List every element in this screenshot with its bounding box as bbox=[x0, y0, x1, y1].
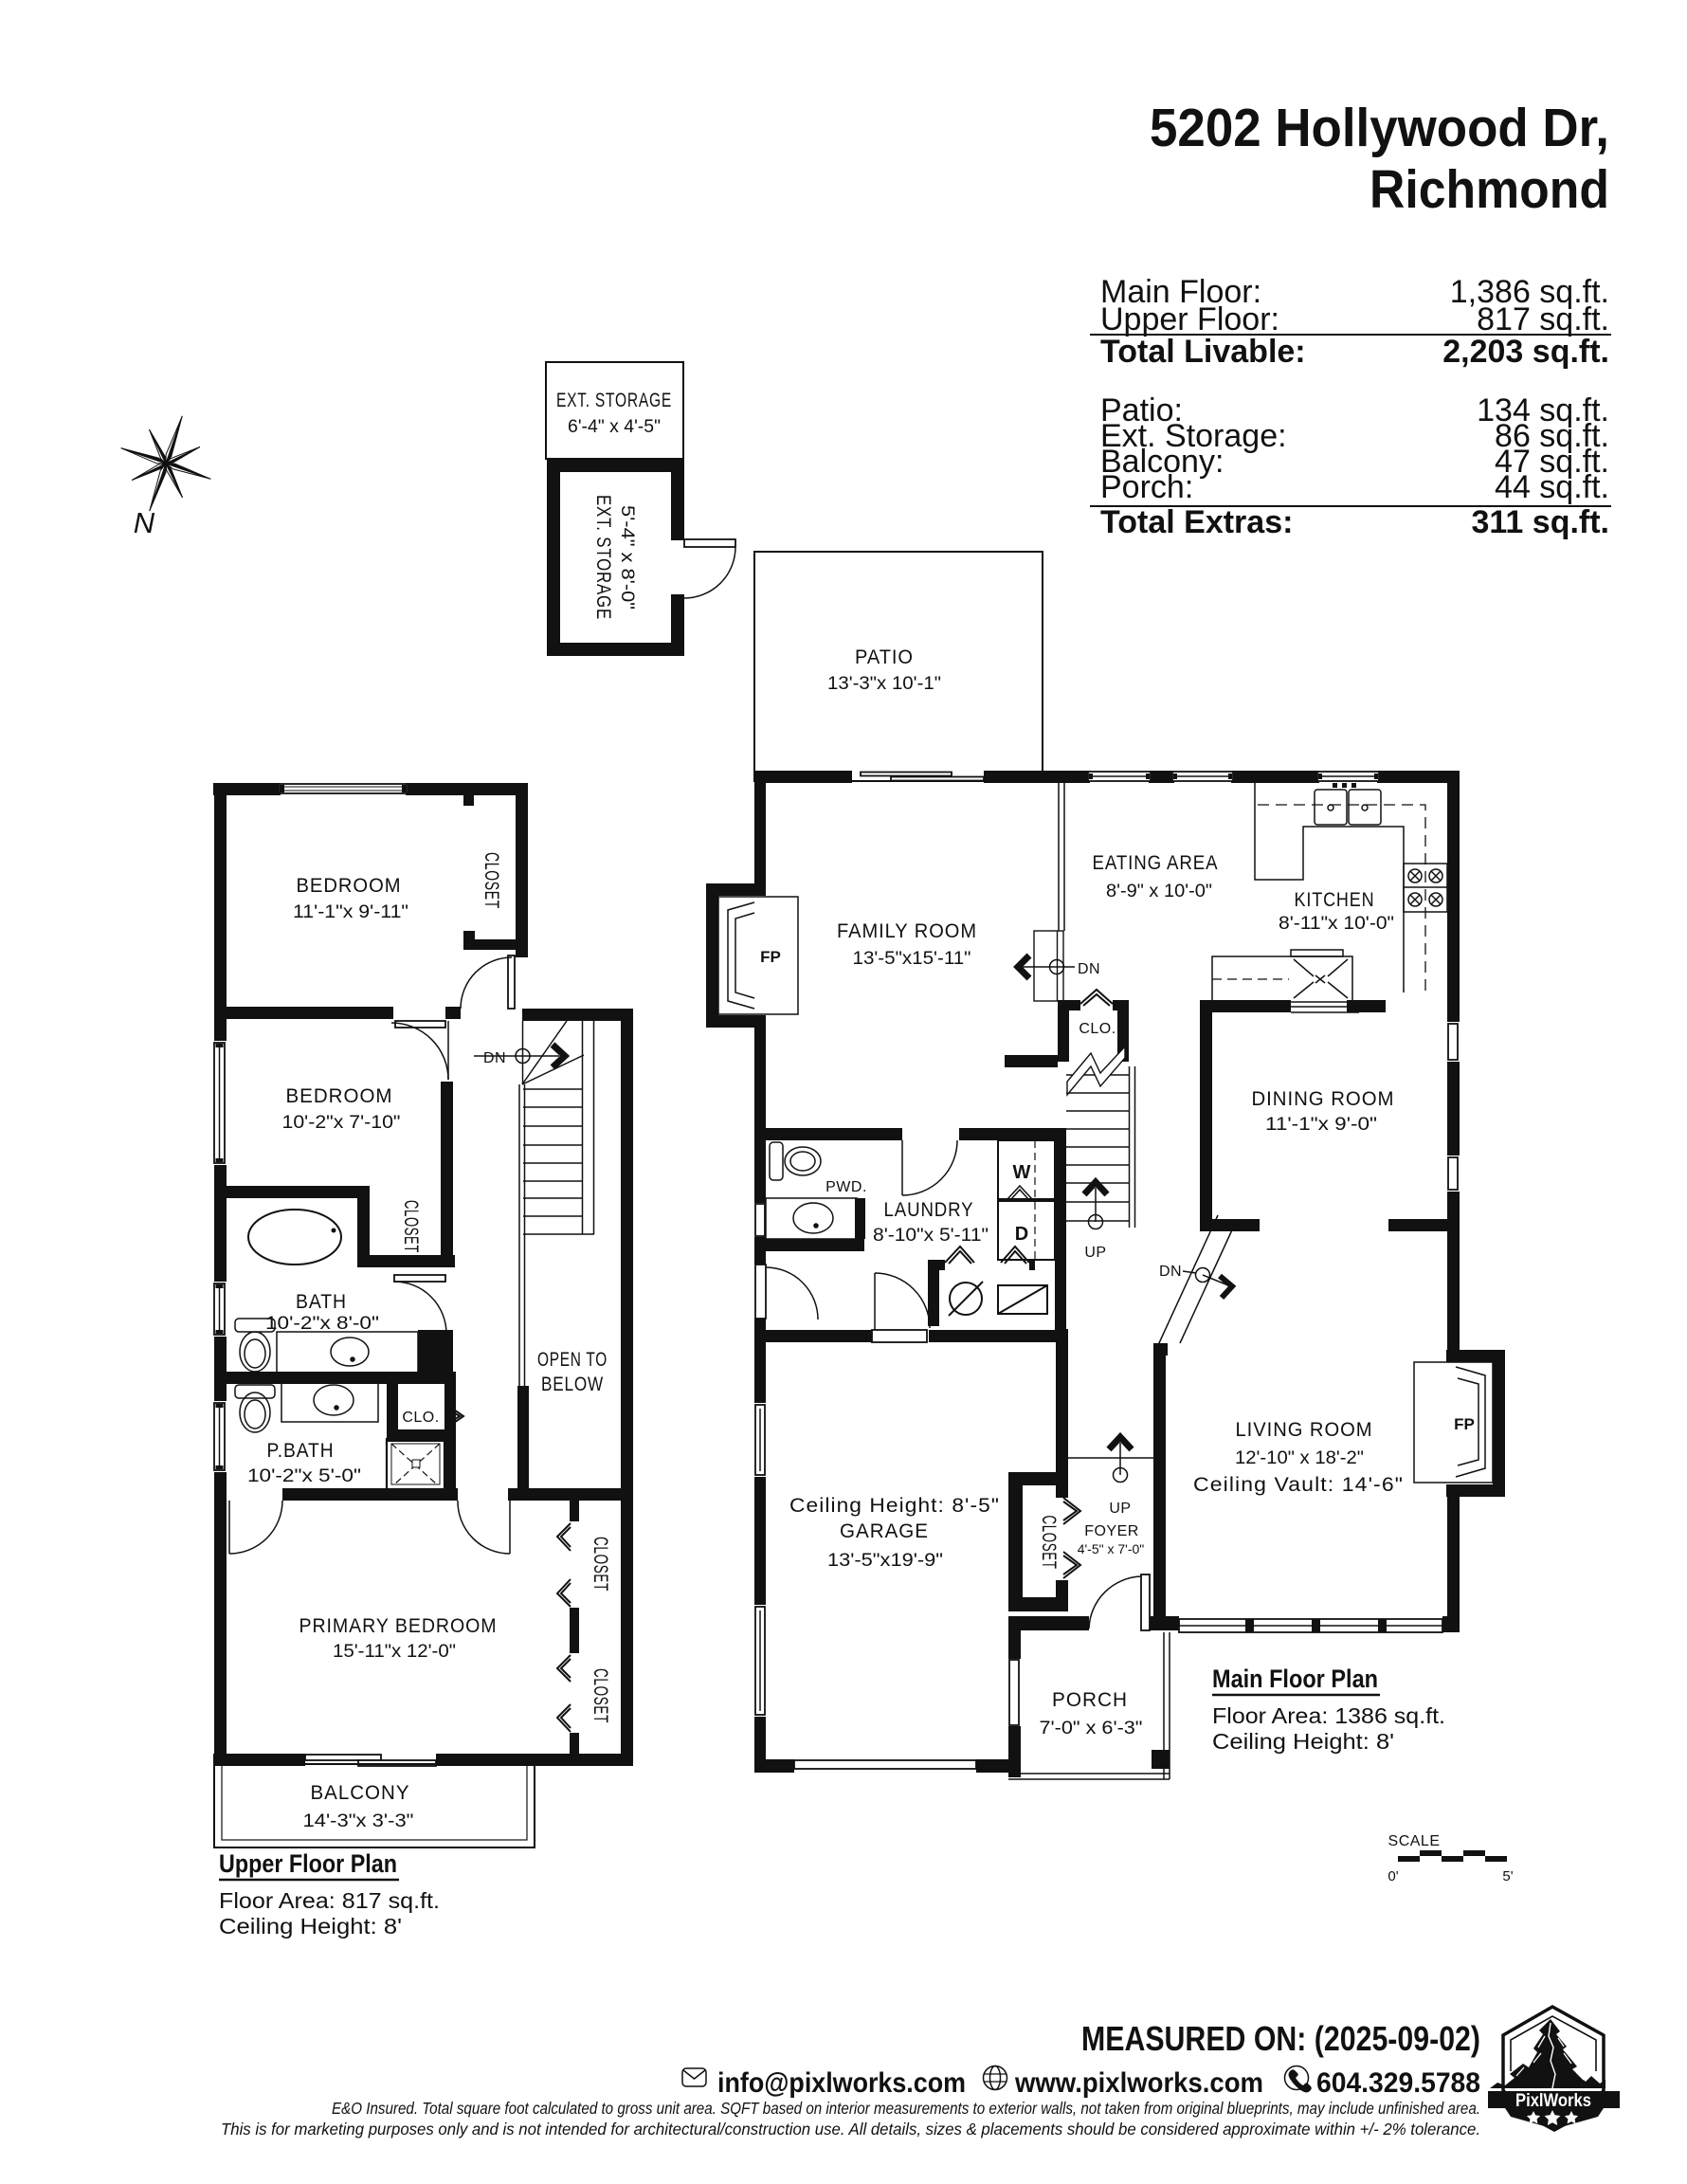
svg-text:info@pixlworks.com: info@pixlworks.com bbox=[717, 2067, 966, 2099]
svg-text:13'-5"x15'-11": 13'-5"x15'-11" bbox=[853, 949, 971, 969]
svg-text:8'-10"x 5'-11": 8'-10"x 5'-11" bbox=[873, 1226, 989, 1246]
svg-text:CLOSET: CLOSET bbox=[481, 852, 502, 909]
svg-text:www.pixlworks.com: www.pixlworks.com bbox=[1014, 2067, 1263, 2099]
svg-text:13'-5"x19'-9": 13'-5"x19'-9" bbox=[827, 1551, 943, 1571]
svg-text:4'-5" x 7'-0": 4'-5" x 7'-0" bbox=[1078, 1541, 1145, 1556]
svg-text:2,203 sq.ft.: 2,203 sq.ft. bbox=[1442, 334, 1609, 370]
svg-text:DINING ROOM: DINING ROOM bbox=[1252, 1088, 1395, 1110]
svg-text:Porch:: Porch: bbox=[1100, 469, 1193, 505]
svg-text:10'-2"x 5'-0": 10'-2"x 5'-0" bbox=[247, 1466, 361, 1486]
svg-text:BEDROOM: BEDROOM bbox=[297, 875, 402, 897]
svg-text:Richmond: Richmond bbox=[1370, 159, 1609, 220]
svg-text:BATH: BATH bbox=[296, 1291, 347, 1313]
svg-text:12'-10" x 18'-2": 12'-10" x 18'-2" bbox=[1235, 1448, 1364, 1468]
svg-text:SCALE: SCALE bbox=[1388, 1833, 1441, 1849]
svg-text:DN: DN bbox=[1078, 961, 1100, 977]
svg-text:DN: DN bbox=[1159, 1264, 1182, 1280]
svg-text:11'-1"x 9'-11": 11'-1"x 9'-11" bbox=[293, 902, 408, 922]
svg-text:FP: FP bbox=[760, 948, 781, 966]
svg-text:DN: DN bbox=[483, 1050, 506, 1066]
svg-text:8'-11"x 10'-0": 8'-11"x 10'-0" bbox=[1279, 914, 1394, 934]
svg-text:Ceiling Vault: 14'-6": Ceiling Vault: 14'-6" bbox=[1193, 1474, 1404, 1496]
svg-text:7'-0" x 6'-3": 7'-0" x 6'-3" bbox=[1040, 1719, 1143, 1738]
svg-text:10'-2"x 7'-10": 10'-2"x 7'-10" bbox=[282, 1113, 401, 1133]
svg-text:EATING AREA: EATING AREA bbox=[1093, 852, 1219, 874]
svg-text:UP: UP bbox=[1084, 1245, 1106, 1261]
svg-text:PixlWorks: PixlWorks bbox=[1515, 2091, 1591, 2111]
svg-text:MEASURED ON: (2025-09-02): MEASURED ON: (2025-09-02) bbox=[1081, 2019, 1480, 2058]
svg-text:Main Floor Plan: Main Floor Plan bbox=[1212, 1665, 1378, 1693]
svg-text:Ceiling Height: 8': Ceiling Height: 8' bbox=[219, 1914, 402, 1938]
svg-text:Total Extras:: Total Extras: bbox=[1100, 504, 1293, 540]
svg-text:FOYER: FOYER bbox=[1084, 1523, 1139, 1539]
svg-text:604.329.5788: 604.329.5788 bbox=[1316, 2067, 1480, 2099]
svg-text:FAMILY ROOM: FAMILY ROOM bbox=[837, 920, 977, 942]
svg-text:BEDROOM: BEDROOM bbox=[286, 1085, 393, 1107]
svg-text:E&O Insured. Total square foo: E&O Insured. Total square foot calculate… bbox=[332, 2099, 1480, 2118]
svg-text:P.BATH: P.BATH bbox=[267, 1440, 335, 1462]
svg-text:311 sq.ft.: 311 sq.ft. bbox=[1471, 504, 1609, 540]
svg-text:13'-3"x 10'-1": 13'-3"x 10'-1" bbox=[827, 674, 941, 694]
svg-text:EXT. STORAGE: EXT. STORAGE bbox=[556, 390, 672, 411]
svg-text:BELOW: BELOW bbox=[541, 1374, 604, 1395]
svg-text:Floor Area: 817 sq.ft.: Floor Area: 817 sq.ft. bbox=[219, 1888, 440, 1913]
svg-text:LAUNDRY: LAUNDRY bbox=[884, 1199, 974, 1221]
svg-text:CLOSET: CLOSET bbox=[590, 1537, 611, 1592]
svg-text:Ceiling Height: 8'-5": Ceiling Height: 8'-5" bbox=[789, 1495, 1000, 1517]
svg-text:CLO.: CLO. bbox=[1079, 1021, 1116, 1037]
svg-text:W: W bbox=[1013, 1162, 1031, 1183]
svg-text:11'-1"x 9'-0": 11'-1"x 9'-0" bbox=[1265, 1115, 1377, 1135]
svg-text:PORCH: PORCH bbox=[1052, 1689, 1128, 1711]
svg-text:5202 Hollywood Dr,: 5202 Hollywood Dr, bbox=[1150, 98, 1609, 158]
svg-text:5'-4" x 8'-0": 5'-4" x 8'-0" bbox=[617, 505, 637, 610]
svg-text:EXT. STORAGE: EXT. STORAGE bbox=[592, 495, 614, 620]
svg-text:8'-9" x 10'-0": 8'-9" x 10'-0" bbox=[1106, 882, 1212, 901]
svg-text:N: N bbox=[134, 506, 155, 539]
svg-text:This is for marketing purposes: This is for marketing purposes only and … bbox=[221, 2120, 1480, 2138]
svg-text:D: D bbox=[1015, 1224, 1028, 1245]
svg-text:Floor Area: 1386 sq.ft.: Floor Area: 1386 sq.ft. bbox=[1212, 1703, 1445, 1728]
svg-text:PATIO: PATIO bbox=[855, 646, 914, 668]
svg-text:BALCONY: BALCONY bbox=[311, 1782, 410, 1804]
svg-text:0': 0' bbox=[1388, 1868, 1398, 1884]
svg-text:LIVING ROOM: LIVING ROOM bbox=[1236, 1419, 1373, 1441]
svg-text:Upper Floor:: Upper Floor: bbox=[1100, 301, 1279, 337]
svg-text:OPEN TO: OPEN TO bbox=[537, 1349, 608, 1371]
svg-text:CLO.: CLO. bbox=[402, 1410, 439, 1426]
svg-text:Upper Floor Plan: Upper Floor Plan bbox=[219, 1849, 397, 1878]
svg-text:817 sq.ft.: 817 sq.ft. bbox=[1477, 301, 1609, 337]
svg-text:Ceiling Height: 8': Ceiling Height: 8' bbox=[1212, 1729, 1394, 1754]
svg-text:CLOSET: CLOSET bbox=[400, 1200, 422, 1253]
svg-text:UP: UP bbox=[1109, 1501, 1131, 1517]
svg-text:15'-11"x 12'-0": 15'-11"x 12'-0" bbox=[333, 1642, 456, 1662]
svg-text:FP: FP bbox=[1454, 1415, 1475, 1433]
svg-text:6'-4" x 4'-5": 6'-4" x 4'-5" bbox=[568, 417, 661, 437]
svg-text:CLOSET: CLOSET bbox=[590, 1668, 611, 1723]
svg-text:Total Livable:: Total Livable: bbox=[1100, 334, 1306, 370]
svg-text:GARAGE: GARAGE bbox=[840, 1520, 929, 1542]
svg-text:14'-3"x 3'-3": 14'-3"x 3'-3" bbox=[303, 1811, 414, 1831]
svg-text:PWD.: PWD. bbox=[825, 1179, 867, 1195]
svg-text:CLOSET: CLOSET bbox=[1038, 1516, 1060, 1570]
svg-text:PRIMARY BEDROOM: PRIMARY BEDROOM bbox=[299, 1615, 498, 1637]
svg-text:10'-2"x 8'-0": 10'-2"x 8'-0" bbox=[265, 1314, 379, 1334]
svg-text:KITCHEN: KITCHEN bbox=[1295, 889, 1375, 911]
svg-text:5': 5' bbox=[1502, 1868, 1513, 1884]
svg-text:44 sq.ft.: 44 sq.ft. bbox=[1495, 469, 1609, 505]
